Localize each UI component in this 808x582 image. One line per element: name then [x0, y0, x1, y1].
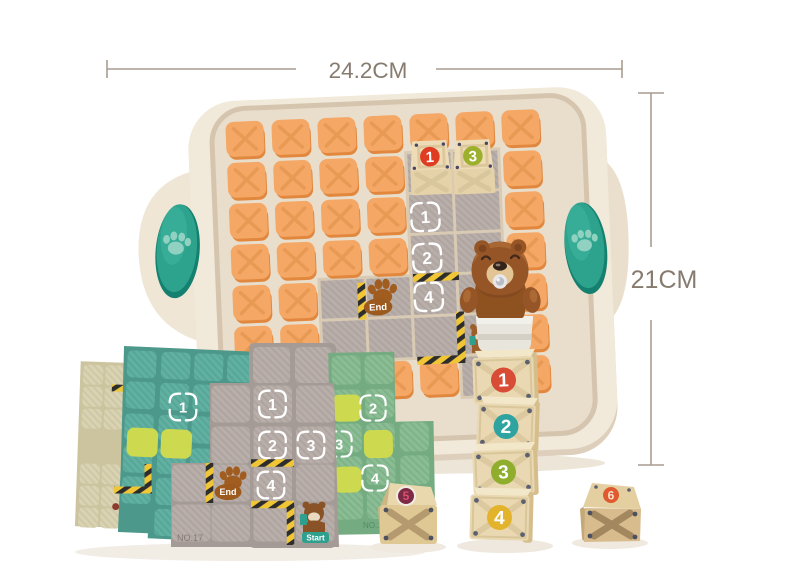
svg-text:3: 3 — [498, 462, 509, 483]
svg-text:21CM: 21CM — [631, 266, 698, 294]
svg-text:1: 1 — [179, 399, 187, 416]
svg-text:1: 1 — [420, 208, 430, 227]
svg-text:4: 4 — [424, 288, 435, 307]
svg-text:Start: Start — [306, 534, 325, 543]
svg-text:1: 1 — [498, 370, 510, 391]
svg-text:3: 3 — [335, 436, 343, 453]
svg-text:2: 2 — [369, 400, 377, 417]
svg-text:3: 3 — [468, 148, 477, 165]
svg-text:5: 5 — [403, 489, 410, 503]
svg-text:4: 4 — [267, 478, 276, 495]
svg-text:4: 4 — [494, 508, 506, 529]
svg-text:2: 2 — [500, 417, 511, 438]
svg-text:1: 1 — [425, 149, 434, 166]
svg-text:2: 2 — [268, 438, 277, 455]
svg-text:2: 2 — [422, 249, 432, 268]
svg-text:24.2CM: 24.2CM — [329, 58, 408, 83]
svg-text:NO.17: NO.17 — [177, 533, 203, 543]
svg-text:1: 1 — [268, 397, 277, 414]
svg-text:4: 4 — [371, 470, 380, 487]
svg-text:6: 6 — [608, 489, 615, 503]
svg-text:End: End — [220, 487, 237, 497]
svg-text:End: End — [369, 302, 388, 314]
svg-text:3: 3 — [307, 438, 316, 455]
